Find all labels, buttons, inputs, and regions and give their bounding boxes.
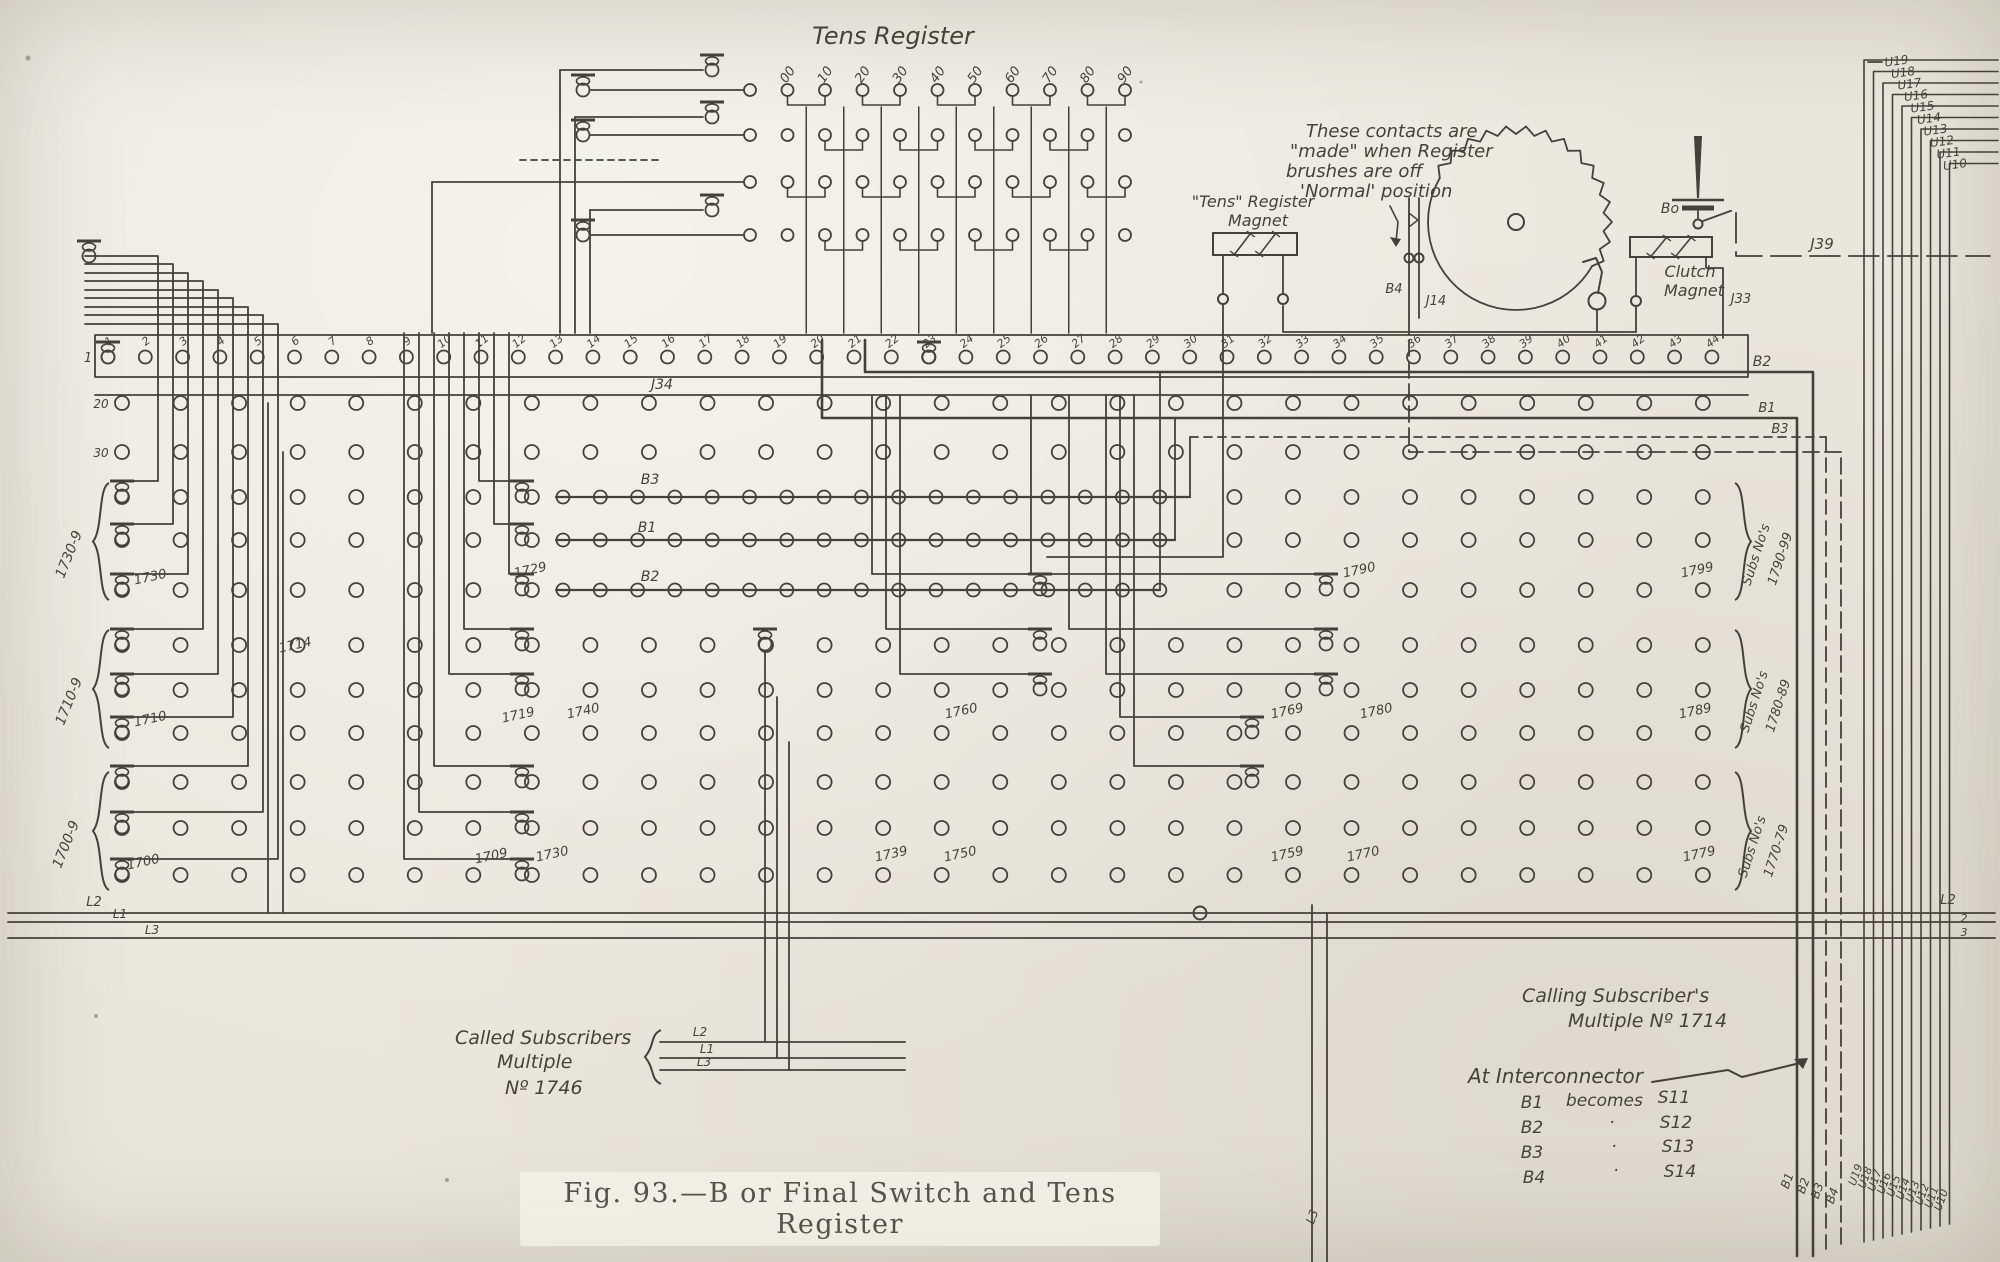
wire bbox=[1283, 306, 1636, 332]
contact-point bbox=[466, 821, 480, 835]
contact-point bbox=[935, 638, 949, 652]
wiper-brush-symbol bbox=[510, 524, 534, 546]
contact-point bbox=[174, 490, 188, 504]
contact-point bbox=[642, 868, 656, 882]
contact-point bbox=[1110, 726, 1124, 740]
contact-point bbox=[997, 351, 1010, 364]
made-contact-link bbox=[938, 96, 976, 105]
battery-symbol bbox=[1672, 200, 1724, 208]
wiper-brush-symbol bbox=[571, 75, 595, 97]
contact-point bbox=[885, 351, 898, 364]
paper-speck bbox=[94, 1014, 98, 1018]
text-label: These contacts are bbox=[1306, 121, 1478, 142]
contact-point bbox=[291, 445, 305, 459]
contact-point bbox=[1403, 490, 1417, 504]
contact-point bbox=[935, 868, 949, 882]
contact-point bbox=[475, 351, 488, 364]
junction-contact bbox=[1218, 294, 1228, 304]
text-label: Magnet bbox=[1228, 211, 1289, 230]
contact-point bbox=[894, 176, 906, 188]
text-label: 1799 bbox=[1680, 560, 1715, 582]
contact-point bbox=[935, 445, 949, 459]
text-label: B3 bbox=[1771, 422, 1788, 437]
contact-point bbox=[1146, 351, 1159, 364]
contact-point bbox=[174, 583, 188, 597]
wiper-brush-symbol bbox=[110, 574, 134, 596]
magnet-coil bbox=[1213, 231, 1297, 257]
text-label: 1740 bbox=[566, 701, 601, 723]
contact-point bbox=[525, 726, 539, 740]
contact-point bbox=[759, 683, 773, 697]
contact-point bbox=[1637, 775, 1651, 789]
contact-point bbox=[876, 775, 890, 789]
contact-point bbox=[1462, 775, 1476, 789]
contact-point bbox=[291, 775, 305, 789]
junction-contact bbox=[1278, 294, 1288, 304]
contact-point bbox=[1034, 351, 1047, 364]
contact-point bbox=[1696, 683, 1710, 697]
wiper-brush-symbol bbox=[700, 55, 724, 77]
group-brace bbox=[93, 630, 109, 748]
text-label: B2 bbox=[641, 569, 660, 585]
contact-point bbox=[1119, 129, 1131, 141]
contact-point bbox=[139, 351, 152, 364]
contact-point bbox=[1227, 445, 1241, 459]
contact-point bbox=[1169, 821, 1183, 835]
wiper-brush-symbol bbox=[110, 717, 134, 739]
text-label: 30 bbox=[890, 64, 912, 86]
contact-point bbox=[1286, 533, 1300, 547]
wire bbox=[509, 333, 510, 574]
contact-point bbox=[1286, 821, 1300, 835]
contact-point bbox=[1169, 683, 1183, 697]
contact-point bbox=[1227, 775, 1241, 789]
junction-contact bbox=[1694, 220, 1703, 229]
contact-point bbox=[1044, 176, 1056, 188]
contact-point bbox=[1052, 775, 1066, 789]
contact-point bbox=[1696, 868, 1710, 882]
contact-point bbox=[232, 533, 246, 547]
text-label: 1769 bbox=[1270, 701, 1305, 723]
wire bbox=[85, 298, 233, 717]
contact-point bbox=[876, 638, 890, 652]
contact-point bbox=[1082, 229, 1094, 241]
wire bbox=[886, 395, 1028, 629]
contact-point bbox=[1110, 868, 1124, 882]
contact-point bbox=[232, 490, 246, 504]
contact-point bbox=[876, 726, 890, 740]
text-label: 1730 bbox=[133, 567, 168, 589]
wire bbox=[1390, 206, 1398, 242]
text-label: B2 bbox=[1753, 354, 1772, 370]
contact-point bbox=[291, 726, 305, 740]
contact-point bbox=[1286, 396, 1300, 410]
contact-point bbox=[349, 868, 363, 882]
text-label: 1 bbox=[84, 351, 92, 366]
wiper-brush-symbol bbox=[700, 195, 724, 217]
contact-point bbox=[1345, 490, 1359, 504]
wiper-brush-symbol bbox=[510, 629, 534, 651]
text-label: L3 bbox=[145, 923, 159, 937]
contact-point bbox=[291, 490, 305, 504]
contact-point bbox=[1462, 638, 1476, 652]
contact-point bbox=[349, 445, 363, 459]
contact-point bbox=[1110, 445, 1124, 459]
contact-point bbox=[935, 396, 949, 410]
u-trunk-wire bbox=[1912, 118, 1999, 1233]
group-brace bbox=[93, 772, 109, 890]
wire bbox=[85, 315, 263, 812]
text-label: "made" when Register bbox=[1290, 141, 1494, 162]
text-label: 1789 bbox=[1678, 701, 1713, 723]
contact-point bbox=[701, 821, 715, 835]
wiper-brush-symbol bbox=[110, 812, 134, 834]
contact-point bbox=[1637, 726, 1651, 740]
text-label: J33 bbox=[1728, 292, 1751, 307]
text-label: 00 bbox=[777, 64, 799, 86]
text-label: Bo bbox=[1661, 201, 1679, 217]
contact-point bbox=[291, 821, 305, 835]
contact-point bbox=[325, 351, 338, 364]
contact-point bbox=[701, 638, 715, 652]
contact-point bbox=[1520, 638, 1534, 652]
contact-point bbox=[1119, 176, 1131, 188]
text-label: 30 bbox=[93, 446, 109, 460]
contact-point bbox=[993, 638, 1007, 652]
contact-point bbox=[1370, 351, 1383, 364]
contact-point bbox=[1637, 583, 1651, 597]
text-label: 6 bbox=[289, 334, 303, 349]
text-label: 1709 bbox=[474, 846, 509, 868]
contact-point bbox=[583, 638, 597, 652]
contact-point bbox=[1579, 726, 1593, 740]
text-label: Magnet bbox=[1664, 281, 1725, 300]
wire bbox=[85, 290, 218, 674]
contact-point bbox=[408, 821, 422, 835]
contact-point bbox=[935, 821, 949, 835]
text-label: 1729 bbox=[513, 560, 548, 582]
contact-point bbox=[232, 726, 246, 740]
armature-needle bbox=[1694, 136, 1702, 198]
contact-point bbox=[1520, 396, 1534, 410]
contact-point bbox=[1403, 583, 1417, 597]
contact-point bbox=[525, 396, 539, 410]
text-label: J34 bbox=[648, 377, 673, 393]
contact-point bbox=[1696, 396, 1710, 410]
contact-point bbox=[291, 868, 305, 882]
contact-point bbox=[466, 638, 480, 652]
contact-point bbox=[819, 229, 831, 241]
text-label: 1780 bbox=[1359, 701, 1394, 723]
contact-point bbox=[1110, 821, 1124, 835]
text-label: B1 bbox=[1778, 1171, 1797, 1191]
wiper-brush-symbol bbox=[510, 481, 534, 503]
contact-point bbox=[819, 129, 831, 141]
contact-point bbox=[174, 868, 188, 882]
contact-point bbox=[1286, 683, 1300, 697]
wiper-brush-symbol bbox=[1028, 629, 1052, 651]
contact-point bbox=[1183, 351, 1196, 364]
contact-point bbox=[642, 821, 656, 835]
contact-point bbox=[993, 396, 1007, 410]
contact-point bbox=[525, 445, 539, 459]
contact-point bbox=[1345, 726, 1359, 740]
labels-layer: 1234567891011121314151617181920212223242… bbox=[50, 22, 1969, 1226]
contact-point bbox=[818, 821, 832, 835]
text-label: 1790 bbox=[1342, 560, 1377, 582]
contact-point bbox=[1227, 583, 1241, 597]
wiper-brush-symbol bbox=[1028, 574, 1052, 596]
wiper-brush-symbol bbox=[110, 674, 134, 696]
contact-point bbox=[1520, 868, 1534, 882]
contact-point bbox=[969, 129, 981, 141]
wire bbox=[1134, 395, 1240, 766]
contact-point bbox=[818, 396, 832, 410]
text-label: 90 bbox=[1115, 64, 1137, 86]
contact-point bbox=[1227, 868, 1241, 882]
contact-point bbox=[1286, 868, 1300, 882]
wire bbox=[1703, 209, 1990, 256]
text-label: At Interconnector bbox=[1466, 1064, 1645, 1088]
contact-point bbox=[1345, 775, 1359, 789]
contact-point bbox=[232, 638, 246, 652]
text-label: B1 bbox=[638, 520, 657, 536]
wire bbox=[872, 395, 1028, 574]
contact-point bbox=[1052, 683, 1066, 697]
contact-point bbox=[876, 445, 890, 459]
contact-point bbox=[1052, 445, 1066, 459]
contact-point bbox=[466, 533, 480, 547]
paper-speck bbox=[26, 56, 31, 61]
contact-flag bbox=[1409, 213, 1418, 227]
contact-point bbox=[876, 396, 890, 410]
contact-point bbox=[1403, 821, 1417, 835]
text-label: 20 bbox=[93, 397, 109, 411]
contact-point bbox=[759, 868, 773, 882]
contact-point bbox=[1345, 445, 1359, 459]
made-contact-link bbox=[788, 96, 826, 105]
contact-point bbox=[174, 821, 188, 835]
contact-point bbox=[876, 821, 890, 835]
text-label: L1 bbox=[113, 907, 127, 921]
contact-point bbox=[1556, 351, 1569, 364]
contact-point bbox=[583, 396, 597, 410]
text-label: Multiple Nº 1714 bbox=[1568, 1010, 1727, 1032]
text-label: 1760 bbox=[944, 701, 979, 723]
contact-point bbox=[1286, 726, 1300, 740]
contact-point bbox=[1007, 229, 1019, 241]
text-label: 1719 bbox=[501, 705, 536, 727]
contact-point bbox=[642, 726, 656, 740]
contact-point bbox=[935, 683, 949, 697]
wire bbox=[822, 340, 1797, 1256]
contact-point bbox=[1403, 396, 1417, 410]
contact-point bbox=[1227, 683, 1241, 697]
contact-point bbox=[1520, 821, 1534, 835]
text-label: L1 bbox=[700, 1042, 714, 1056]
contact-point bbox=[1286, 583, 1300, 597]
text-label: Nº 1746 bbox=[505, 1077, 583, 1099]
text-label: 1779 bbox=[1682, 844, 1717, 866]
contact-point bbox=[1286, 490, 1300, 504]
contact-point bbox=[1444, 351, 1457, 364]
text-label: 2 bbox=[1961, 912, 1968, 925]
text-label: 9 bbox=[400, 334, 414, 349]
contact-point bbox=[935, 775, 949, 789]
contact-point bbox=[782, 176, 794, 188]
contact-point bbox=[857, 229, 869, 241]
text-label: S14 bbox=[1664, 1162, 1696, 1182]
text-label: L2 bbox=[693, 1025, 707, 1039]
text-label: Called Subscribers bbox=[455, 1027, 631, 1049]
text-label: 1780-89 bbox=[1763, 678, 1794, 734]
text-label: S11 bbox=[1658, 1088, 1690, 1108]
contact-point bbox=[1119, 229, 1131, 241]
contact-point bbox=[583, 775, 597, 789]
text-label: 1759 bbox=[1270, 844, 1305, 866]
text-label: 1739 bbox=[874, 844, 909, 866]
contact-point bbox=[1520, 726, 1534, 740]
contact-point bbox=[1044, 229, 1056, 241]
contact-point bbox=[932, 129, 944, 141]
text-label: 1730 bbox=[535, 844, 570, 866]
contact-point bbox=[1052, 638, 1066, 652]
contact-point bbox=[1082, 129, 1094, 141]
text-label: B1 bbox=[1521, 1093, 1543, 1113]
contact-point bbox=[1345, 583, 1359, 597]
text-label: Calling Subscriber's bbox=[1522, 985, 1709, 1007]
contact-point bbox=[932, 229, 944, 241]
scanned-diagram-page: 1234567891011121314151617181920212223242… bbox=[0, 0, 2000, 1262]
contact-point bbox=[773, 351, 786, 364]
ratchet-hub bbox=[1508, 214, 1524, 230]
contact-point bbox=[1169, 638, 1183, 652]
text-label: B4 bbox=[1523, 1168, 1545, 1188]
text-label: 1790-99 bbox=[1765, 531, 1796, 587]
contact-point bbox=[1462, 868, 1476, 882]
contact-point bbox=[291, 396, 305, 410]
contact-point bbox=[232, 821, 246, 835]
contact-point bbox=[661, 351, 674, 364]
contact-point bbox=[759, 821, 773, 835]
wire bbox=[494, 333, 510, 524]
contact-point bbox=[1462, 726, 1476, 740]
contact-point bbox=[818, 726, 832, 740]
text-label: L2 bbox=[86, 895, 102, 910]
contact-point bbox=[349, 726, 363, 740]
contact-point bbox=[583, 821, 597, 835]
wiper-brush-symbol bbox=[510, 766, 534, 788]
made-contact-link bbox=[863, 96, 901, 105]
contact-point bbox=[232, 445, 246, 459]
text-label: L3 bbox=[697, 1055, 711, 1069]
contact-point bbox=[701, 683, 715, 697]
contact-point bbox=[701, 775, 715, 789]
text-label: 1700-9 bbox=[50, 818, 83, 870]
contact-point bbox=[876, 868, 890, 882]
contact-point bbox=[349, 775, 363, 789]
u-trunk-wire bbox=[1950, 164, 1999, 1225]
contact-point bbox=[349, 821, 363, 835]
contact-point bbox=[1110, 683, 1124, 697]
contact-point bbox=[744, 176, 756, 188]
contact-point bbox=[466, 775, 480, 789]
contact-point bbox=[174, 533, 188, 547]
contact-point bbox=[1169, 868, 1183, 882]
text-label: J14 bbox=[1423, 294, 1446, 309]
group-brace bbox=[93, 483, 109, 600]
contact-point bbox=[1110, 396, 1124, 410]
magnet-coil bbox=[1630, 235, 1712, 259]
contact-point bbox=[1696, 533, 1710, 547]
contact-point bbox=[583, 683, 597, 697]
contact-point bbox=[818, 775, 832, 789]
contact-point bbox=[583, 445, 597, 459]
contact-point bbox=[1696, 726, 1710, 740]
contact-point bbox=[1520, 683, 1534, 697]
text-label: · bbox=[1609, 1113, 1614, 1133]
text-label: 1770-79 bbox=[1761, 823, 1792, 879]
text-label: 2 bbox=[139, 334, 153, 349]
text-label: · bbox=[1613, 1161, 1618, 1181]
contact-point bbox=[1169, 775, 1183, 789]
contact-point bbox=[1345, 868, 1359, 882]
contact-point bbox=[1579, 490, 1593, 504]
contact-point bbox=[1345, 533, 1359, 547]
contact-point bbox=[349, 683, 363, 697]
contact-point bbox=[1637, 868, 1651, 882]
contact-point bbox=[1227, 638, 1241, 652]
contact-point bbox=[512, 351, 525, 364]
contact-point bbox=[1579, 821, 1593, 835]
contact-point bbox=[1332, 351, 1345, 364]
contact-point bbox=[1579, 533, 1593, 547]
contact-point bbox=[857, 129, 869, 141]
contact-point bbox=[894, 129, 906, 141]
contact-point bbox=[1696, 638, 1710, 652]
contact-point bbox=[1227, 533, 1241, 547]
contact-point bbox=[1462, 583, 1476, 597]
wiper-brush-symbol bbox=[1240, 766, 1264, 788]
contact-point bbox=[624, 351, 637, 364]
contact-point bbox=[1705, 351, 1718, 364]
wiper-brush-symbol bbox=[77, 241, 101, 263]
contact-point bbox=[818, 638, 832, 652]
symbols-layer bbox=[26, 55, 1809, 1182]
contact-point bbox=[1462, 490, 1476, 504]
text-label: 1730-9 bbox=[53, 528, 86, 580]
wires-layer bbox=[8, 60, 1998, 1262]
contact-point bbox=[349, 490, 363, 504]
text-label: 40 bbox=[927, 64, 949, 86]
contact-point bbox=[466, 726, 480, 740]
wiper-brush-symbol bbox=[110, 524, 134, 546]
contact-point bbox=[698, 351, 711, 364]
text-label: B4 bbox=[1823, 1186, 1842, 1206]
contact-point bbox=[1052, 396, 1066, 410]
text-label: Multiple bbox=[497, 1051, 572, 1073]
contact-point bbox=[818, 683, 832, 697]
contact-point bbox=[1579, 868, 1593, 882]
wire bbox=[85, 307, 248, 766]
text-label: L2 bbox=[1940, 893, 1956, 908]
text-label: L3 bbox=[1303, 1208, 1321, 1226]
wiper-brush-symbol bbox=[110, 629, 134, 651]
contact-point bbox=[1637, 821, 1651, 835]
contact-point bbox=[744, 129, 756, 141]
text-label: B3 bbox=[1521, 1143, 1543, 1163]
contact-point bbox=[1052, 726, 1066, 740]
